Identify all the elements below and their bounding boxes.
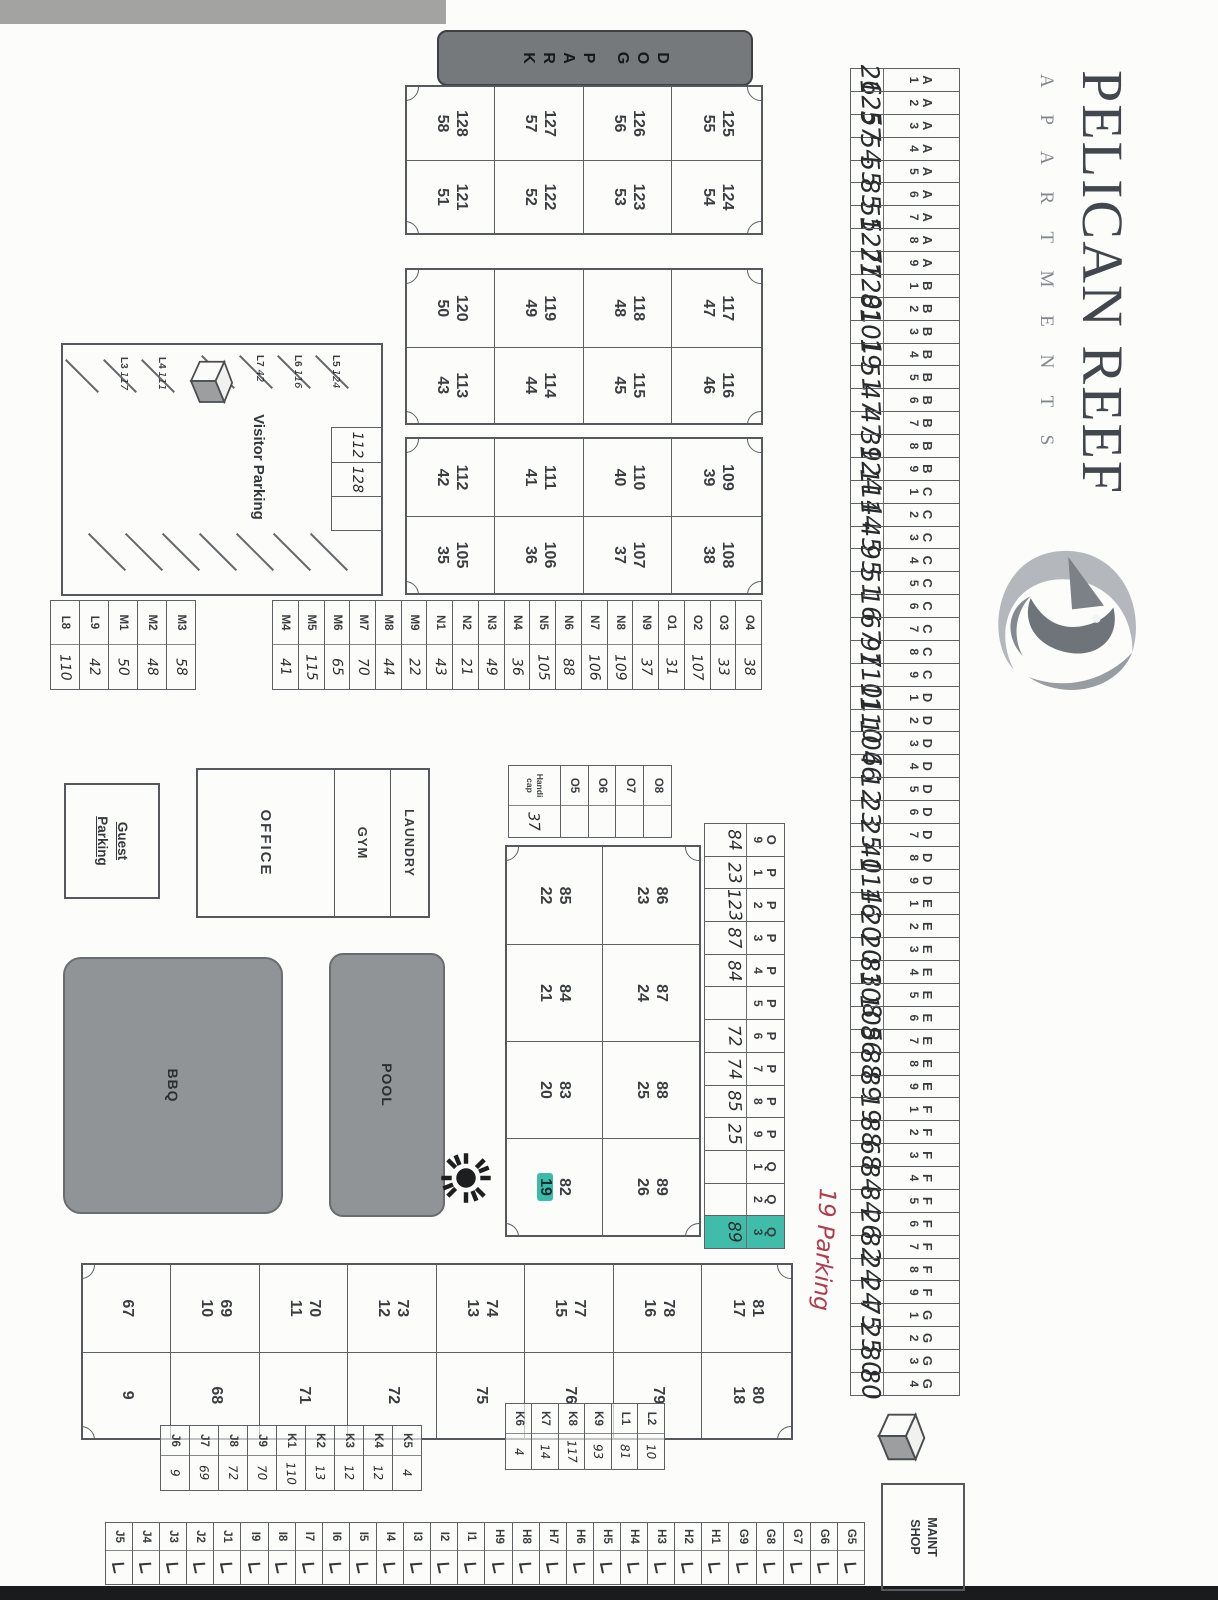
unit-number: 79 bbox=[649, 1386, 666, 1404]
unit-number: 88 bbox=[652, 1081, 669, 1099]
unit-cell-88: 8825 bbox=[603, 1041, 699, 1138]
unit-number: 44 bbox=[521, 376, 538, 394]
parking-strip-center-column: O438O333O2107O131N937N8109N7106N688N5105… bbox=[272, 600, 762, 690]
unit-cell-69: 6910 bbox=[172, 1265, 261, 1352]
parking-space-K1: K1110 bbox=[277, 1426, 306, 1490]
unit-cell-123: 12353 bbox=[584, 160, 673, 233]
unit-number: 36 bbox=[521, 546, 538, 564]
dog-park-letter: K bbox=[519, 52, 537, 64]
parking-space-H5: H5 bbox=[594, 1523, 621, 1584]
unit-number: 83 bbox=[556, 1081, 573, 1099]
unit-cell-70: 7011 bbox=[260, 1265, 349, 1352]
parking-slot-line bbox=[88, 533, 126, 571]
unit-cell-106: 10636 bbox=[496, 516, 585, 593]
unit-number: 17 bbox=[729, 1299, 746, 1317]
assigned-unit-handwritten: 87 bbox=[723, 926, 744, 949]
unit-number: 113 bbox=[452, 372, 469, 398]
unit-cell-87: 8724 bbox=[603, 944, 699, 1041]
unit-number: 25 bbox=[633, 1081, 650, 1099]
parking-space-J2: J2 bbox=[187, 1523, 214, 1584]
parking-slot-line bbox=[236, 533, 274, 571]
handwritten-tick bbox=[817, 1562, 831, 1573]
parking-space-J6: J69 bbox=[161, 1426, 190, 1490]
unit-number: 126 bbox=[629, 110, 646, 137]
unit-cell-115: 11545 bbox=[584, 347, 673, 424]
parking-space-I8: I8 bbox=[269, 1523, 296, 1584]
parking-space-O3: O333 bbox=[711, 601, 737, 689]
building-121-128: 1255512454126561235312757122521285812151 bbox=[405, 85, 763, 235]
unit-number: 40 bbox=[610, 469, 627, 487]
assigned-unit-handwritten: 69 bbox=[197, 1465, 212, 1481]
parking-strip-office-row: O8O7O6O5Handi cap37 bbox=[508, 765, 672, 838]
assigned-unit-handwritten: 36 bbox=[509, 658, 526, 677]
parking-space-K2: K213 bbox=[306, 1426, 335, 1490]
handwritten-tick bbox=[383, 1562, 397, 1573]
handwritten-tick bbox=[166, 1562, 180, 1573]
unit-number: 47 bbox=[699, 299, 716, 317]
unit-number: 87 bbox=[652, 984, 669, 1002]
dog-park-sign: DOGPARK bbox=[437, 30, 753, 86]
unit-cell-119: 11949 bbox=[496, 270, 585, 347]
parking-slot-line bbox=[199, 533, 237, 571]
unit-number: 122 bbox=[540, 184, 557, 211]
parking-space-N8: N8109 bbox=[608, 601, 634, 689]
handwritten-tick bbox=[573, 1562, 587, 1573]
parking-space-J3: J3 bbox=[160, 1523, 187, 1584]
parking-space-P1: P123 bbox=[705, 856, 784, 889]
parking-space-K4: K412 bbox=[364, 1426, 393, 1490]
unit-cell-124: 12454 bbox=[673, 160, 762, 233]
unit-number: 80 bbox=[748, 1386, 765, 1404]
handwritten-tick bbox=[790, 1562, 804, 1573]
unit-cell-107: 10737 bbox=[584, 516, 673, 593]
assigned-unit-handwritten: 84 bbox=[723, 959, 744, 982]
visitor-slot-L4: L4 111 bbox=[156, 357, 167, 391]
assigned-unit-handwritten: 58 bbox=[173, 658, 190, 677]
visitor-slot-L7: L7 42 bbox=[254, 355, 265, 382]
assigned-unit-handwritten: 13 bbox=[313, 1465, 328, 1481]
unit-number: 70 bbox=[305, 1299, 322, 1317]
unit-cell-81: 8117 bbox=[703, 1265, 792, 1352]
parking-slot-line bbox=[125, 533, 163, 571]
parking-strip-l-column: L210L181K993K8117K714K64 bbox=[505, 1403, 665, 1470]
unit-number: 112 bbox=[452, 465, 469, 491]
assigned-unit-handwritten: 115 bbox=[302, 653, 319, 681]
unit-cell-85: 8522 bbox=[507, 847, 603, 944]
handwritten-tick bbox=[302, 1562, 316, 1573]
parking-space-K8: K8117 bbox=[559, 1404, 586, 1469]
assigned-unit-handwritten: 81 bbox=[617, 1444, 632, 1460]
assigned-unit-handwritten: 128 bbox=[349, 466, 365, 493]
parking-space-P7: P774 bbox=[705, 1052, 784, 1085]
unit-number: 115 bbox=[629, 372, 646, 398]
unit-cell-113: 11343 bbox=[407, 347, 496, 424]
unit-cell-126: 12656 bbox=[584, 87, 673, 160]
parking-space-H1: H1 bbox=[702, 1523, 729, 1584]
parking-space-H2: H2 bbox=[675, 1523, 702, 1584]
parking-space-M5: M5115 bbox=[299, 601, 325, 689]
unit-cell-108: 10838 bbox=[673, 516, 762, 593]
maint-shop-label: MAINT SHOP bbox=[906, 1512, 941, 1562]
handwritten-tick bbox=[437, 1562, 451, 1573]
scan-edge-bottom bbox=[0, 1586, 1218, 1600]
handwritten-tick bbox=[627, 1562, 641, 1573]
handwritten-tick bbox=[491, 1562, 505, 1573]
parking-strip-right-column: G5G6G7G8G9H1H2H3H4H5H6H7H8H9I1I2I3I4I5I6… bbox=[105, 1522, 865, 1585]
handwritten-tick bbox=[329, 1562, 343, 1573]
assigned-unit-handwritten: 110 bbox=[56, 653, 73, 681]
unit-cell-84: 8421 bbox=[507, 944, 603, 1041]
visitor-cell: 128 bbox=[332, 462, 382, 496]
unit-number: 52 bbox=[521, 188, 538, 206]
assigned-unit-handwritten: 70 bbox=[255, 1465, 270, 1481]
assigned-unit-handwritten: 44 bbox=[380, 658, 397, 677]
unit-number: 107 bbox=[629, 542, 646, 569]
unit-cell-117: 11747 bbox=[673, 270, 762, 347]
parking-space-P5: P5 bbox=[705, 986, 784, 1019]
assigned-unit-handwritten: 107 bbox=[688, 653, 705, 681]
assigned-unit-handwritten: 74 bbox=[723, 1057, 744, 1080]
parking-space-J7: J769 bbox=[190, 1426, 219, 1490]
assigned-unit-handwritten: 37 bbox=[637, 658, 654, 677]
unit-number: 15 bbox=[551, 1299, 568, 1317]
unit-number: 108 bbox=[718, 542, 735, 569]
unit-cell-78: 7816 bbox=[614, 1265, 703, 1352]
unit-number: 72 bbox=[384, 1386, 401, 1404]
assigned-unit-handwritten: 9 bbox=[168, 1469, 182, 1477]
unit-number: 16 bbox=[640, 1299, 657, 1317]
parking-slot-line bbox=[310, 533, 348, 571]
assigned-unit-handwritten: 14 bbox=[538, 1444, 553, 1460]
unit-cell-122: 12252 bbox=[496, 160, 585, 233]
pelican-logo-icon bbox=[978, 520, 1166, 710]
parking-space-L9: L942 bbox=[80, 601, 109, 689]
unit-number: 69 bbox=[216, 1299, 233, 1317]
parking-space-J5: J5 bbox=[106, 1523, 133, 1584]
parking-space-P8: P885 bbox=[705, 1085, 784, 1118]
handwritten-tick bbox=[735, 1562, 749, 1573]
unit-cell-118: 11848 bbox=[584, 270, 673, 347]
dog-park-letter: G bbox=[613, 52, 631, 64]
dumpster-cube-icon bbox=[872, 1405, 932, 1467]
assigned-unit-handwritten: 88 bbox=[560, 658, 577, 677]
visitor-parking-label: Visitor Parking bbox=[247, 409, 269, 525]
building-82-89: 86238724882589268522842183208219 bbox=[505, 845, 701, 1237]
parking-space-O4: O438 bbox=[736, 601, 761, 689]
building-113-120: 1174711646118481154511949114441205011343 bbox=[405, 268, 763, 425]
unit-number: 35 bbox=[433, 546, 450, 564]
unit-number: 42 bbox=[433, 469, 450, 487]
unit-number: 13 bbox=[463, 1299, 480, 1317]
handwritten-tick bbox=[519, 1562, 533, 1573]
parking-space-N6: N688 bbox=[556, 601, 582, 689]
dog-park-letter: O bbox=[633, 52, 651, 64]
unit-number: 56 bbox=[610, 115, 627, 133]
parking-space-M2: M248 bbox=[138, 601, 167, 689]
unit-number: 67 bbox=[118, 1299, 135, 1317]
unit-number: 127 bbox=[540, 110, 557, 137]
parking-space-M4: M441 bbox=[273, 601, 299, 689]
parking-space-H9: H9 bbox=[485, 1523, 512, 1584]
unit-number: 121 bbox=[452, 184, 469, 211]
visitor-numbered-cells: 112128 bbox=[331, 427, 383, 531]
parking-space-M7: M770 bbox=[350, 601, 376, 689]
guest-parking-box: Guest Parking bbox=[64, 783, 160, 899]
parking-space-O7: O7 bbox=[616, 766, 644, 837]
parking-space-H7: H7 bbox=[540, 1523, 567, 1584]
unit-number: 50 bbox=[433, 299, 450, 317]
unit-cell-77: 7715 bbox=[526, 1265, 615, 1352]
unit-cell-9: 9 bbox=[83, 1352, 172, 1439]
parking-space-I2: I2 bbox=[431, 1523, 458, 1584]
assigned-unit-handwritten: 72 bbox=[723, 1024, 744, 1047]
assigned-unit-handwritten: 48 bbox=[144, 658, 161, 677]
unit-number: 109 bbox=[718, 464, 735, 491]
handwritten-tick bbox=[247, 1562, 261, 1573]
parking-strip-k-column: K54K412K312K213K1110J970J872J769J69 bbox=[160, 1425, 422, 1491]
guest-parking-label: Guest Parking bbox=[92, 811, 133, 871]
unit-cell-110: 11040 bbox=[584, 439, 673, 516]
unit-number: 53 bbox=[610, 188, 627, 206]
assigned-unit-handwritten: 4 bbox=[400, 1469, 414, 1477]
maint-shop-box: MAINT SHOP bbox=[881, 1483, 965, 1591]
handwritten-tick bbox=[708, 1562, 722, 1573]
unit-number: 85 bbox=[556, 887, 573, 905]
unit-number: 74 bbox=[482, 1299, 499, 1317]
unit-number: 68 bbox=[207, 1386, 224, 1404]
unit-number: 46 bbox=[699, 376, 716, 394]
visitor-slot-L6: L6 116 bbox=[292, 355, 303, 389]
parking-space-N7: N7106 bbox=[582, 601, 608, 689]
parking-space-P6: P672 bbox=[705, 1019, 784, 1052]
parking-space-L1: L181 bbox=[612, 1404, 639, 1469]
parking-space-O1: O131 bbox=[659, 601, 685, 689]
parking-space-M1: M150 bbox=[109, 601, 138, 689]
unit-number: 20 bbox=[537, 1081, 554, 1099]
parking-space-H3: H3 bbox=[648, 1523, 675, 1584]
assigned-unit-handwritten: 12 bbox=[342, 1465, 357, 1481]
parking-space-I9: I9 bbox=[241, 1523, 268, 1584]
parking-space-I3: I3 bbox=[404, 1523, 431, 1584]
unit-number: 128 bbox=[452, 110, 469, 137]
unit-cell-74: 7413 bbox=[437, 1265, 526, 1352]
unit-number: 84 bbox=[556, 984, 573, 1002]
unit-cell-67: 67 bbox=[83, 1265, 172, 1352]
parking-slot-line bbox=[273, 533, 311, 571]
parking-space-M8: M844 bbox=[376, 601, 402, 689]
gym-room: GYM bbox=[334, 770, 390, 916]
unit-cell-109: 10939 bbox=[673, 439, 762, 516]
building-105-112: 1093910838110401073711141106361124210535 bbox=[405, 437, 763, 595]
parking-space-J1: J1 bbox=[214, 1523, 241, 1584]
parking-space-Q1: Q1 bbox=[705, 1150, 784, 1183]
assigned-unit-handwritten: 117 bbox=[564, 1440, 579, 1464]
parking-space-M9: M922 bbox=[402, 601, 428, 689]
parking-space-Q3: Q389 bbox=[705, 1215, 784, 1248]
handwritten-tick bbox=[193, 1562, 207, 1573]
assigned-unit-handwritten: 43 bbox=[431, 658, 448, 677]
handwritten-tick bbox=[546, 1562, 560, 1573]
unit-number: 22 bbox=[537, 887, 554, 905]
unit-cell-111: 11141 bbox=[496, 439, 585, 516]
parking-space-K3: K312 bbox=[335, 1426, 364, 1490]
page-title: PELICAN REEF bbox=[1069, 70, 1136, 550]
assigned-unit-handwritten: 106 bbox=[586, 653, 603, 681]
parking-space-N1: N143 bbox=[427, 601, 453, 689]
assigned-unit-handwritten: 112 bbox=[349, 432, 365, 459]
page-subtitle: A P A R T M E N T S bbox=[1035, 70, 1057, 550]
parking-space-H8: H8 bbox=[513, 1523, 540, 1584]
dog-park-letter: P bbox=[579, 53, 597, 64]
unit-number: 55 bbox=[699, 115, 716, 133]
parking-space-O6: O6 bbox=[589, 766, 617, 837]
unit-number: 51 bbox=[433, 188, 450, 206]
unit-number: 54 bbox=[699, 188, 716, 206]
parking-space-P4: P484 bbox=[705, 954, 784, 987]
assigned-unit-handwritten: 10 bbox=[644, 1444, 659, 1460]
parking-space-I7: I7 bbox=[296, 1523, 323, 1584]
unit-cell-83: 8320 bbox=[507, 1041, 603, 1138]
parking-space-G5: G5 bbox=[838, 1523, 864, 1584]
parking-space-K7: K714 bbox=[533, 1404, 560, 1469]
unit-number: 9 bbox=[118, 1391, 135, 1400]
assigned-unit-handwritten: 110 bbox=[283, 1461, 298, 1485]
unit-cell-105: 10535 bbox=[407, 516, 496, 593]
parking-space-O2: O2107 bbox=[685, 601, 711, 689]
unit-number: 110 bbox=[629, 465, 646, 491]
unit-number: 123 bbox=[629, 184, 646, 211]
assigned-unit-handwritten: 70 bbox=[354, 658, 371, 677]
unit-number: 73 bbox=[393, 1299, 410, 1317]
unit-number: 71 bbox=[295, 1386, 312, 1404]
handwritten-tick bbox=[763, 1562, 777, 1573]
assigned-unit-handwritten: 109 bbox=[611, 653, 628, 681]
parking-space-L2: L210 bbox=[639, 1404, 665, 1469]
dog-park-letter: A bbox=[559, 52, 577, 64]
unit-cell-116: 11646 bbox=[673, 347, 762, 424]
assigned-unit-handwritten: 50 bbox=[115, 658, 132, 677]
dog-park-letter: R bbox=[539, 52, 557, 64]
unit-number: 117 bbox=[718, 295, 735, 321]
assigned-unit-handwritten: 25 bbox=[723, 1123, 744, 1146]
unit-number: 118 bbox=[629, 295, 646, 321]
unit-number: 37 bbox=[610, 546, 627, 564]
unit-cell-89: 8926 bbox=[603, 1138, 699, 1235]
handwritten-tick bbox=[654, 1562, 668, 1573]
assigned-unit-handwritten: 80 bbox=[855, 1367, 886, 1401]
unit-cell-86: 8623 bbox=[603, 847, 699, 944]
handwritten-tick bbox=[410, 1562, 424, 1573]
unit-number: 116 bbox=[718, 372, 735, 398]
unit-cell-125: 12555 bbox=[673, 87, 762, 160]
unit-cell-120: 12050 bbox=[407, 270, 496, 347]
unit-number: 10 bbox=[197, 1299, 214, 1317]
unit-number: 125 bbox=[718, 110, 735, 137]
parking-space-H6: H6 bbox=[567, 1523, 594, 1584]
parking-space-N4: N436 bbox=[505, 601, 531, 689]
unit-number: 39 bbox=[699, 469, 716, 487]
handwritten-tick bbox=[464, 1562, 478, 1573]
visitor-cell: 112 bbox=[332, 428, 382, 462]
parking-space-N2: N221 bbox=[453, 601, 479, 689]
visitor-parking-area: Visitor Parking L5 124L6 116L7 42L4 111L… bbox=[61, 343, 383, 596]
assigned-unit-handwritten: 4 bbox=[512, 1447, 526, 1455]
handwritten-tick bbox=[844, 1562, 858, 1573]
unit-number: 114 bbox=[540, 372, 557, 398]
assigned-unit-handwritten: 37 bbox=[525, 811, 544, 831]
unit-number: 26 bbox=[633, 1178, 650, 1196]
parking-space-G4: G480 bbox=[851, 1372, 959, 1395]
handwritten-tick bbox=[356, 1562, 370, 1573]
parking-space-J8: J872 bbox=[219, 1426, 248, 1490]
pool-label: POOL bbox=[379, 1063, 395, 1107]
unit-number: 77 bbox=[570, 1299, 587, 1317]
unit-number: 11 bbox=[286, 1300, 303, 1317]
parking-space-P9: P925 bbox=[705, 1117, 784, 1150]
dumpster-cube-icon bbox=[185, 353, 239, 409]
laundry-room: LAUNDRY bbox=[390, 770, 428, 916]
parking-space-Handicap: Handi cap37 bbox=[509, 766, 561, 837]
unit-number: 49 bbox=[521, 299, 538, 317]
parking-space-J4: J4 bbox=[133, 1523, 160, 1584]
unit-number: 78 bbox=[659, 1299, 676, 1317]
assigned-unit-handwritten: 23 bbox=[723, 861, 744, 884]
parking-space-N5: N5105 bbox=[530, 601, 556, 689]
parking-space-K5: K54 bbox=[393, 1426, 421, 1490]
parking-space-I6: I6 bbox=[323, 1523, 350, 1584]
unit-number: 89 bbox=[652, 1178, 669, 1196]
parking-space-K9: K993 bbox=[586, 1404, 613, 1469]
unit-cell-73: 7312 bbox=[349, 1265, 438, 1352]
parking-space-I4: I4 bbox=[377, 1523, 404, 1584]
assigned-unit-handwritten: 41 bbox=[277, 658, 294, 677]
unit-number: 24 bbox=[633, 984, 650, 1002]
assigned-unit-handwritten: 22 bbox=[406, 658, 423, 677]
unit-number: 105 bbox=[452, 542, 469, 569]
title-block: PELICAN REEF A P A R T M E N T S bbox=[1035, 70, 1136, 550]
unit-number: 12 bbox=[374, 1299, 391, 1317]
parking-space-I5: I5 bbox=[350, 1523, 377, 1584]
pelican-reef-site-map-scan: PELICAN REEF A P A R T M E N T S DOGPARK… bbox=[0, 0, 1218, 1600]
unit-number: 48 bbox=[610, 299, 627, 317]
unit-number: 38 bbox=[699, 546, 716, 564]
unit-number: 86 bbox=[652, 887, 669, 905]
handwritten-tick bbox=[112, 1562, 126, 1573]
bbq-area: BBQ bbox=[63, 957, 283, 1214]
assigned-unit-handwritten: 93 bbox=[591, 1444, 606, 1460]
unit-number: 45 bbox=[610, 376, 627, 394]
unit-number: 81 bbox=[748, 1299, 765, 1317]
assigned-unit-handwritten: 31 bbox=[663, 658, 680, 677]
bbq-label: BBQ bbox=[165, 1068, 181, 1102]
visitor-slot-L5: L5 124 bbox=[330, 355, 341, 389]
unit-number: 82 bbox=[556, 1178, 573, 1196]
dog-park-letter: D bbox=[653, 52, 671, 64]
handwritten-tick bbox=[220, 1562, 234, 1573]
parking-strip-upper-row: O984P123P2123P387P484P5P672P774P885P925Q… bbox=[704, 823, 785, 1249]
unit-number: 58 bbox=[433, 115, 450, 133]
unit-cell-121: 12151 bbox=[407, 160, 496, 233]
pool-area: POOL bbox=[329, 953, 445, 1217]
unit-number: 21 bbox=[537, 984, 554, 1002]
parking-space-O9: O984 bbox=[705, 824, 784, 856]
parking-slot-line bbox=[162, 533, 200, 571]
handwritten-tick bbox=[681, 1562, 695, 1573]
unit-cell-112: 11242 bbox=[407, 439, 496, 516]
parking-strip-top-row: A126A2125A357A454A555A685A755A8127A927B1… bbox=[850, 68, 960, 1396]
parking-space-O8: O8 bbox=[644, 766, 671, 837]
unit-cell-127: 12757 bbox=[496, 87, 585, 160]
